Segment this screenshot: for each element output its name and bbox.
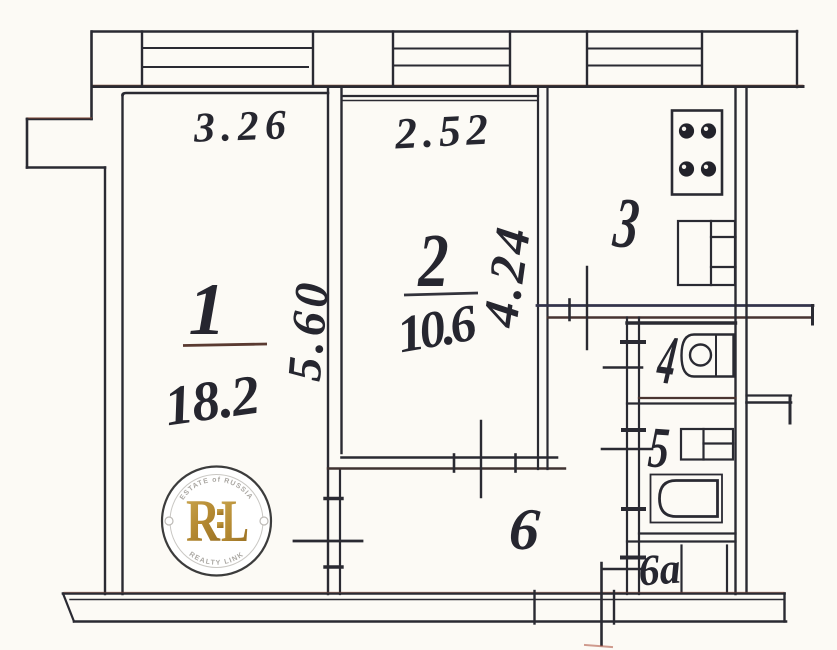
svg-text:6a: 6a	[637, 545, 682, 596]
svg-text:18.2: 18.2	[161, 364, 264, 439]
svg-text:2: 2	[417, 219, 448, 303]
svg-text:2.52: 2.52	[393, 105, 489, 159]
svg-text:6: 6	[507, 495, 542, 563]
svg-text:5.60: 5.60	[278, 281, 339, 383]
svg-text:R: R	[186, 488, 221, 554]
svg-text:3.26: 3.26	[192, 102, 287, 151]
svg-text:L: L	[221, 488, 249, 554]
svg-text:5: 5	[646, 415, 671, 481]
svg-text:1: 1	[189, 269, 226, 351]
